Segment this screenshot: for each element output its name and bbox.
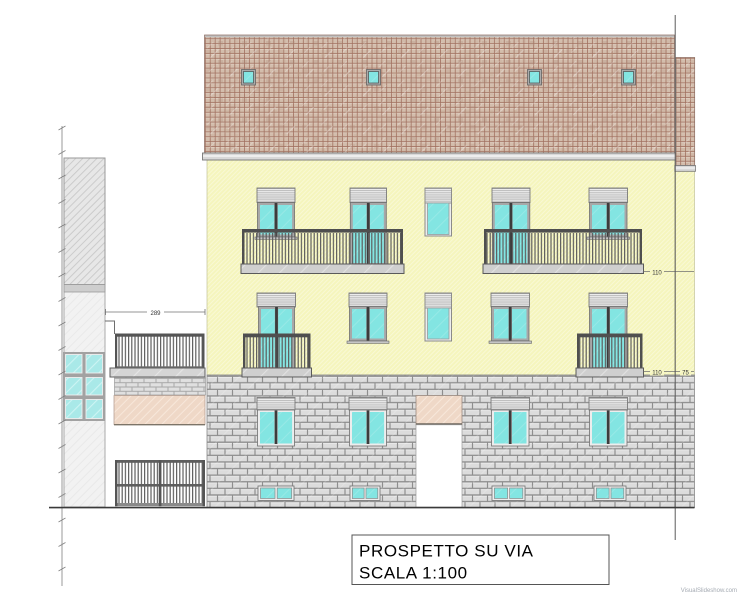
svg-text:PROSPETTO SU VIA: PROSPETTO SU VIA — [359, 542, 534, 561]
svg-text:VisualSlideshow.com: VisualSlideshow.com — [681, 588, 737, 594]
svg-text:110: 110 — [652, 371, 662, 377]
svg-text:SCALA 1:100: SCALA 1:100 — [359, 564, 468, 583]
svg-text:289: 289 — [150, 311, 161, 317]
svg-text:75: 75 — [682, 371, 689, 377]
svg-text:110: 110 — [652, 271, 662, 277]
